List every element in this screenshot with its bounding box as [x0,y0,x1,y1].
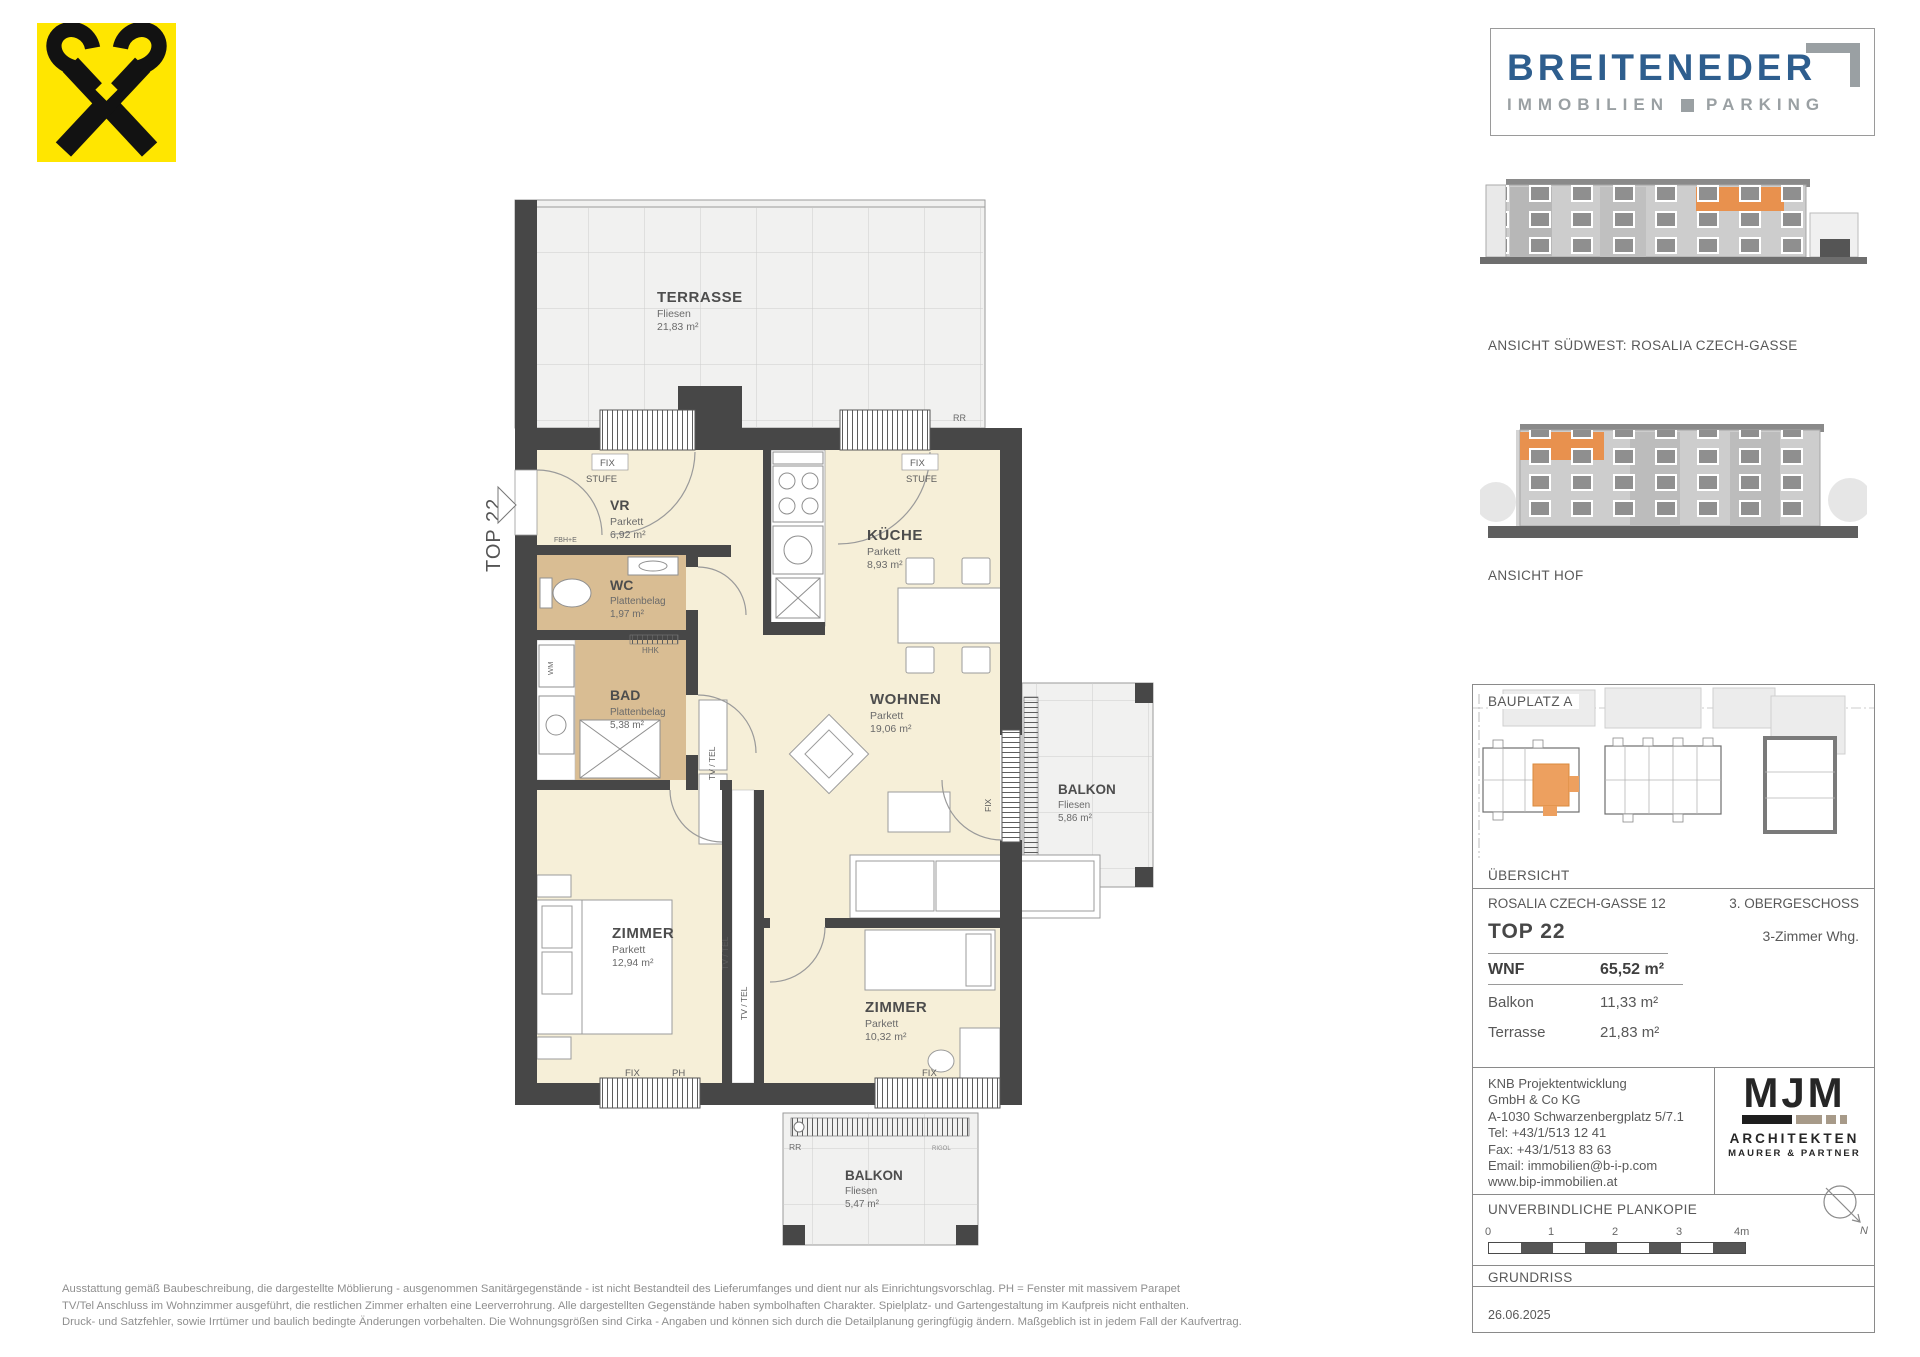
mjm-architekten: ARCHITEKTEN [1714,1131,1875,1146]
contact-line: Tel: +43/1/513 12 41 [1488,1125,1684,1141]
contact-line: www.bip-immobilien.at [1488,1174,1684,1190]
elevation-southwest-caption: ANSICHT SÜDWEST: ROSALIA CZECH-GASSE [1488,338,1798,353]
svg-text:WC: WC [610,577,633,593]
ph-label: PH [672,1068,685,1079]
svg-text:Fliesen: Fliesen [845,1186,877,1197]
wm-label: WM [546,662,555,675]
elevation-hof-drawing [1480,392,1867,552]
svg-text:TERRASSE: TERRASSE [657,289,743,306]
fix-label: FIX [922,1068,937,1079]
svg-text:12,94 m²: 12,94 m² [612,957,654,969]
unit-entrance-marker: TOP 22 [483,487,516,572]
svg-text:8,93 m²: 8,93 m² [867,559,903,571]
fix-label: FIX [600,458,615,469]
wnf-label: WNF [1488,961,1524,979]
fix-label: FIX [625,1068,640,1079]
scale-tick-0: 0 [1485,1226,1491,1238]
rigol-label: RIGOL [932,1146,951,1152]
scale-tick-3: 3 [1676,1226,1682,1238]
brand-square-icon [1681,99,1694,112]
scale-tick-1: 1 [1548,1226,1554,1238]
svg-text:VR: VR [610,497,629,513]
terrasse-label: Terrasse [1488,1024,1546,1041]
hhk-label: HHK [642,646,660,655]
svg-text:ZIMMER: ZIMMER [612,925,674,942]
fbh-e-label: FBH+E [554,537,577,544]
svg-text:Parkett: Parkett [870,710,903,722]
svg-text:WOHNEN: WOHNEN [870,691,941,708]
disclaimer-line-1: Ausstattung gemäß Baubeschreibung, die d… [62,1281,1402,1298]
stufe-label: STUFE [586,474,617,485]
svg-text:Parkett: Parkett [610,516,643,528]
balkon-value: 11,33 m² [1600,994,1658,1011]
contact-line: KNB Projektentwicklung [1488,1076,1684,1092]
rr-label: RR [953,413,966,423]
rr-label: RR [789,1142,801,1152]
floorplan-sheet: { "colors": {"accent_orange":"#E8914E","… [0,0,1920,1357]
contact-line: A-1030 Schwarzenbergplatz 5/7.1 [1488,1109,1684,1125]
mjm-maurer-partner: MAURER & PARTNER [1714,1148,1875,1159]
unit-number: TOP 22 [1488,920,1566,944]
terrasse-value: 21,83 m² [1600,1024,1659,1041]
breiteneder-bracket-icon [1806,43,1860,87]
raiffeisen-giebelkreuz-icon [37,23,176,162]
svg-text:Parkett: Parkett [865,1018,898,1030]
svg-text:10,32 m²: 10,32 m² [865,1031,907,1043]
elevation-southwest-drawing [1480,155,1867,275]
plan-copy-note: UNVERBINDLICHE PLANKOPIE [1488,1202,1697,1217]
address-label: ROSALIA CZECH-GASSE 12 [1488,896,1666,911]
svg-text:6,92 m²: 6,92 m² [610,529,646,541]
fix-label: FIX [910,458,925,469]
scale-bar [1488,1242,1746,1254]
svg-text:21,83 m²: 21,83 m² [657,321,699,333]
svg-text:BALKON: BALKON [1058,782,1116,797]
svg-text:Fliesen: Fliesen [657,308,691,320]
siteplan-unit-highlight [1533,764,1569,806]
svg-text:Parkett: Parkett [867,546,900,558]
svg-text:Fliesen: Fliesen [1058,800,1090,811]
scale-tick-4m: 4m [1734,1226,1749,1238]
fix-label: FIX [983,798,993,812]
disclaimer-line-3: Druck- und Satzfehler, sowie Irrtümer un… [62,1314,1402,1331]
breiteneder-parking: PARKING [1706,95,1825,115]
tv-tel-label: TV / TEL [739,986,749,1020]
north-arrow-icon: N [1816,1182,1872,1242]
svg-text:BALKON: BALKON [845,1168,903,1183]
developer-contact: KNB Projektentwicklung GmbH & Co KG A-10… [1488,1076,1684,1191]
contact-line: GmbH & Co KG [1488,1092,1684,1108]
floor-label: 3. OBERGESCHOSS [1729,896,1859,911]
svg-text:19,06 m²: 19,06 m² [870,723,912,735]
floor-plan-drawing: RR RR RIGOL RR RIGOL [420,140,1220,1260]
drawing-type: GRUNDRISS [1488,1270,1573,1285]
disclaimer-text: Ausstattung gemäß Baubeschreibung, die d… [62,1281,1402,1331]
siteplan-drawing [1473,686,1874,864]
svg-text:5,86 m²: 5,86 m² [1058,813,1093,824]
breiteneder-logo: BREITENEDER IMMOBILIEN PARKING [1490,28,1875,136]
scale-tick-2: 2 [1612,1226,1618,1238]
kitchen-counter [773,452,823,618]
svg-text:Parkett: Parkett [612,944,645,956]
plan-date: 26.06.2025 [1488,1308,1551,1322]
mjm-wordmark: MJM [1714,1072,1875,1114]
contact-line: Fax: +43/1/513 83 63 [1488,1142,1684,1158]
mjm-bars-icon [1714,1115,1875,1124]
disclaimer-line-2: TV/Tel Anschluss im Wohnzimmer ausgeführ… [62,1298,1402,1315]
unit-type: 3-Zimmer Whg. [1763,928,1859,944]
svg-text:ZIMMER: ZIMMER [865,999,927,1016]
wnf-value: 65,52 m² [1600,961,1664,979]
mjm-architects-logo: MJM ARCHITEKTEN MAURER & PARTNER [1714,1072,1875,1159]
stufe-label: STUFE [906,474,937,485]
svg-text:5,38 m²: 5,38 m² [610,720,645,731]
breiteneder-wordmark: BREITENEDER [1507,47,1816,89]
svg-text:BAD: BAD [610,687,640,703]
breiteneder-immobilien: IMMOBILIEN [1507,95,1669,115]
svg-text:1,97 m²: 1,97 m² [610,609,645,620]
siteplan-title: BAUPLATZ A [1488,694,1579,709]
svg-text:Plattenbelag: Plattenbelag [610,707,666,718]
tv-tel-label: TV / TEL [707,746,717,780]
tv-tel-label: TV / TEL [720,936,730,970]
elevation-hof-caption: ANSICHT HOF [1488,568,1584,583]
siteplan-caption: ÜBERSICHT [1488,868,1570,883]
svg-text:KÜCHE: KÜCHE [867,527,923,544]
svg-text:5,47 m²: 5,47 m² [845,1199,880,1210]
contact-line: Email: immobilien@b-i-p.com [1488,1158,1684,1174]
svg-text:N: N [1860,1225,1868,1237]
svg-text:Plattenbelag: Plattenbelag [610,596,666,607]
terrace-area: RR [515,200,985,428]
balkon-label: Balkon [1488,994,1534,1011]
title-block-panel: BREITENEDER IMMOBILIEN PARKING ANSICHT S… [1472,20,1875,1332]
